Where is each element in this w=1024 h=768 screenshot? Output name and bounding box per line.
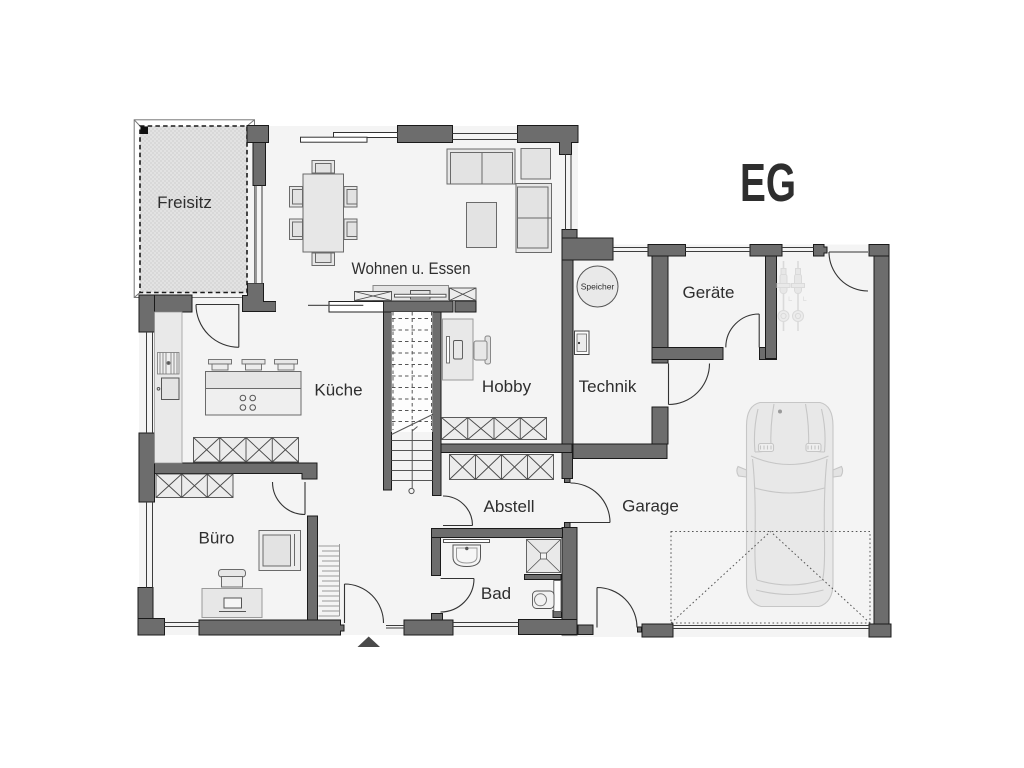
svg-text:Hobby: Hobby <box>482 377 532 396</box>
svg-text:Abstell: Abstell <box>483 497 534 516</box>
svg-text:Speicher: Speicher <box>581 282 615 292</box>
svg-text:EG: EG <box>740 153 796 213</box>
svg-text:Garage: Garage <box>622 497 679 516</box>
svg-text:Freisitz: Freisitz <box>157 193 212 212</box>
svg-text:Technik: Technik <box>579 377 637 396</box>
svg-text:Geräte: Geräte <box>683 283 735 302</box>
svg-text:Büro: Büro <box>199 529 235 548</box>
svg-text:Bad: Bad <box>481 584 511 603</box>
svg-text:Küche: Küche <box>314 381 362 400</box>
svg-text:Wohnen u. Essen: Wohnen u. Essen <box>352 259 471 278</box>
